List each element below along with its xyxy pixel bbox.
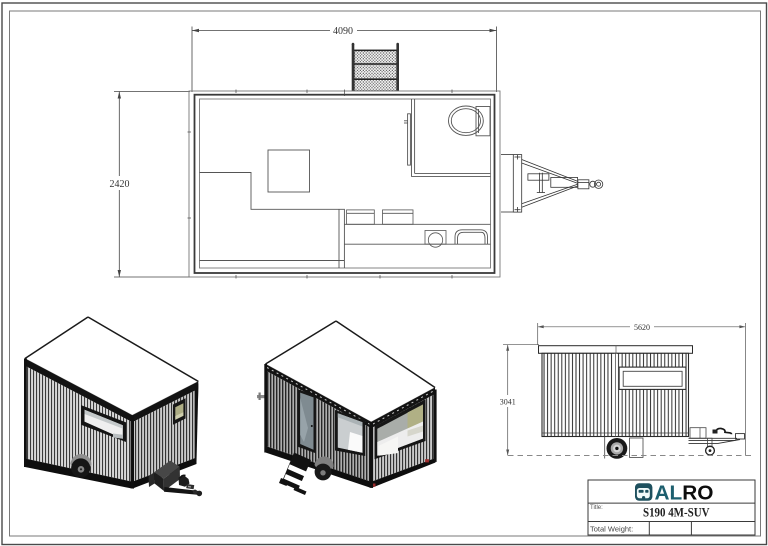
svg-text:3041: 3041: [500, 397, 516, 406]
svg-text:Title:: Title:: [590, 505, 603, 511]
svg-text:4090: 4090: [333, 26, 353, 37]
svg-text:ALRO: ALRO: [655, 483, 714, 505]
svg-text:S190 4M-SUV: S190 4M-SUV: [643, 505, 710, 520]
svg-text:Total Weight:: Total Weight:: [590, 525, 633, 534]
svg-text:5620: 5620: [634, 323, 650, 332]
svg-text:2420: 2420: [110, 179, 130, 190]
